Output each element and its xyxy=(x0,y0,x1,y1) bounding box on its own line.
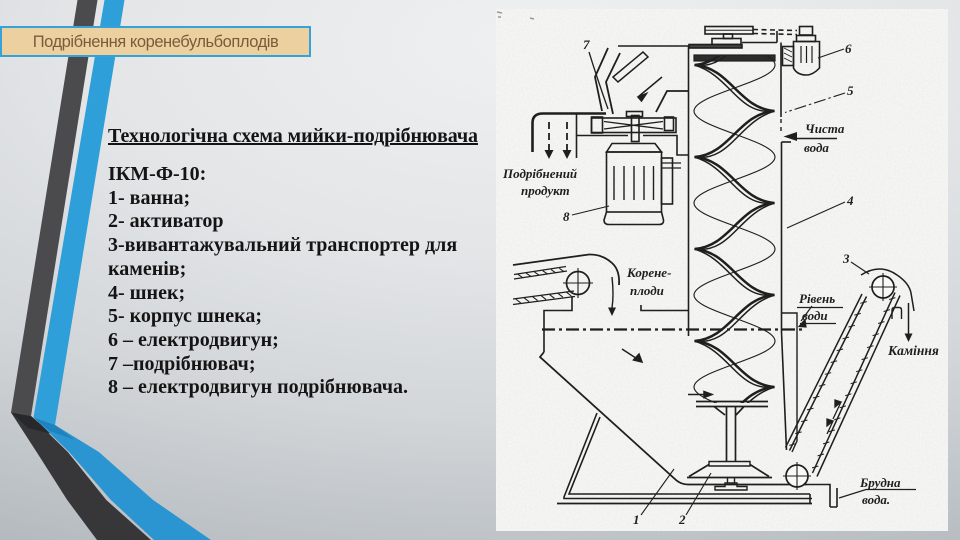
svg-text:Подрібнений: Подрібнений xyxy=(502,166,577,181)
svg-text:Брудна: Брудна xyxy=(859,475,901,490)
svg-text:плоди: плоди xyxy=(630,283,664,298)
svg-text:продукт: продукт xyxy=(521,183,570,198)
svg-text:Корене-: Корене- xyxy=(626,265,671,280)
svg-text:води: води xyxy=(802,308,828,323)
svg-text:Каміння: Каміння xyxy=(887,343,939,358)
svg-text:вода.: вода. xyxy=(862,492,890,507)
svg-text:Чиста: Чиста xyxy=(805,121,845,136)
svg-text:Рівень: Рівень xyxy=(799,291,835,306)
svg-text:7: 7 xyxy=(583,37,590,52)
svg-text:1: 1 xyxy=(633,512,640,527)
svg-text:вода: вода xyxy=(804,140,829,155)
svg-text:5: 5 xyxy=(847,83,854,98)
svg-text:2: 2 xyxy=(678,512,686,527)
svg-text:3: 3 xyxy=(842,251,850,266)
svg-text:8: 8 xyxy=(563,209,570,224)
svg-text:6: 6 xyxy=(845,41,852,56)
svg-text:4: 4 xyxy=(846,193,854,208)
